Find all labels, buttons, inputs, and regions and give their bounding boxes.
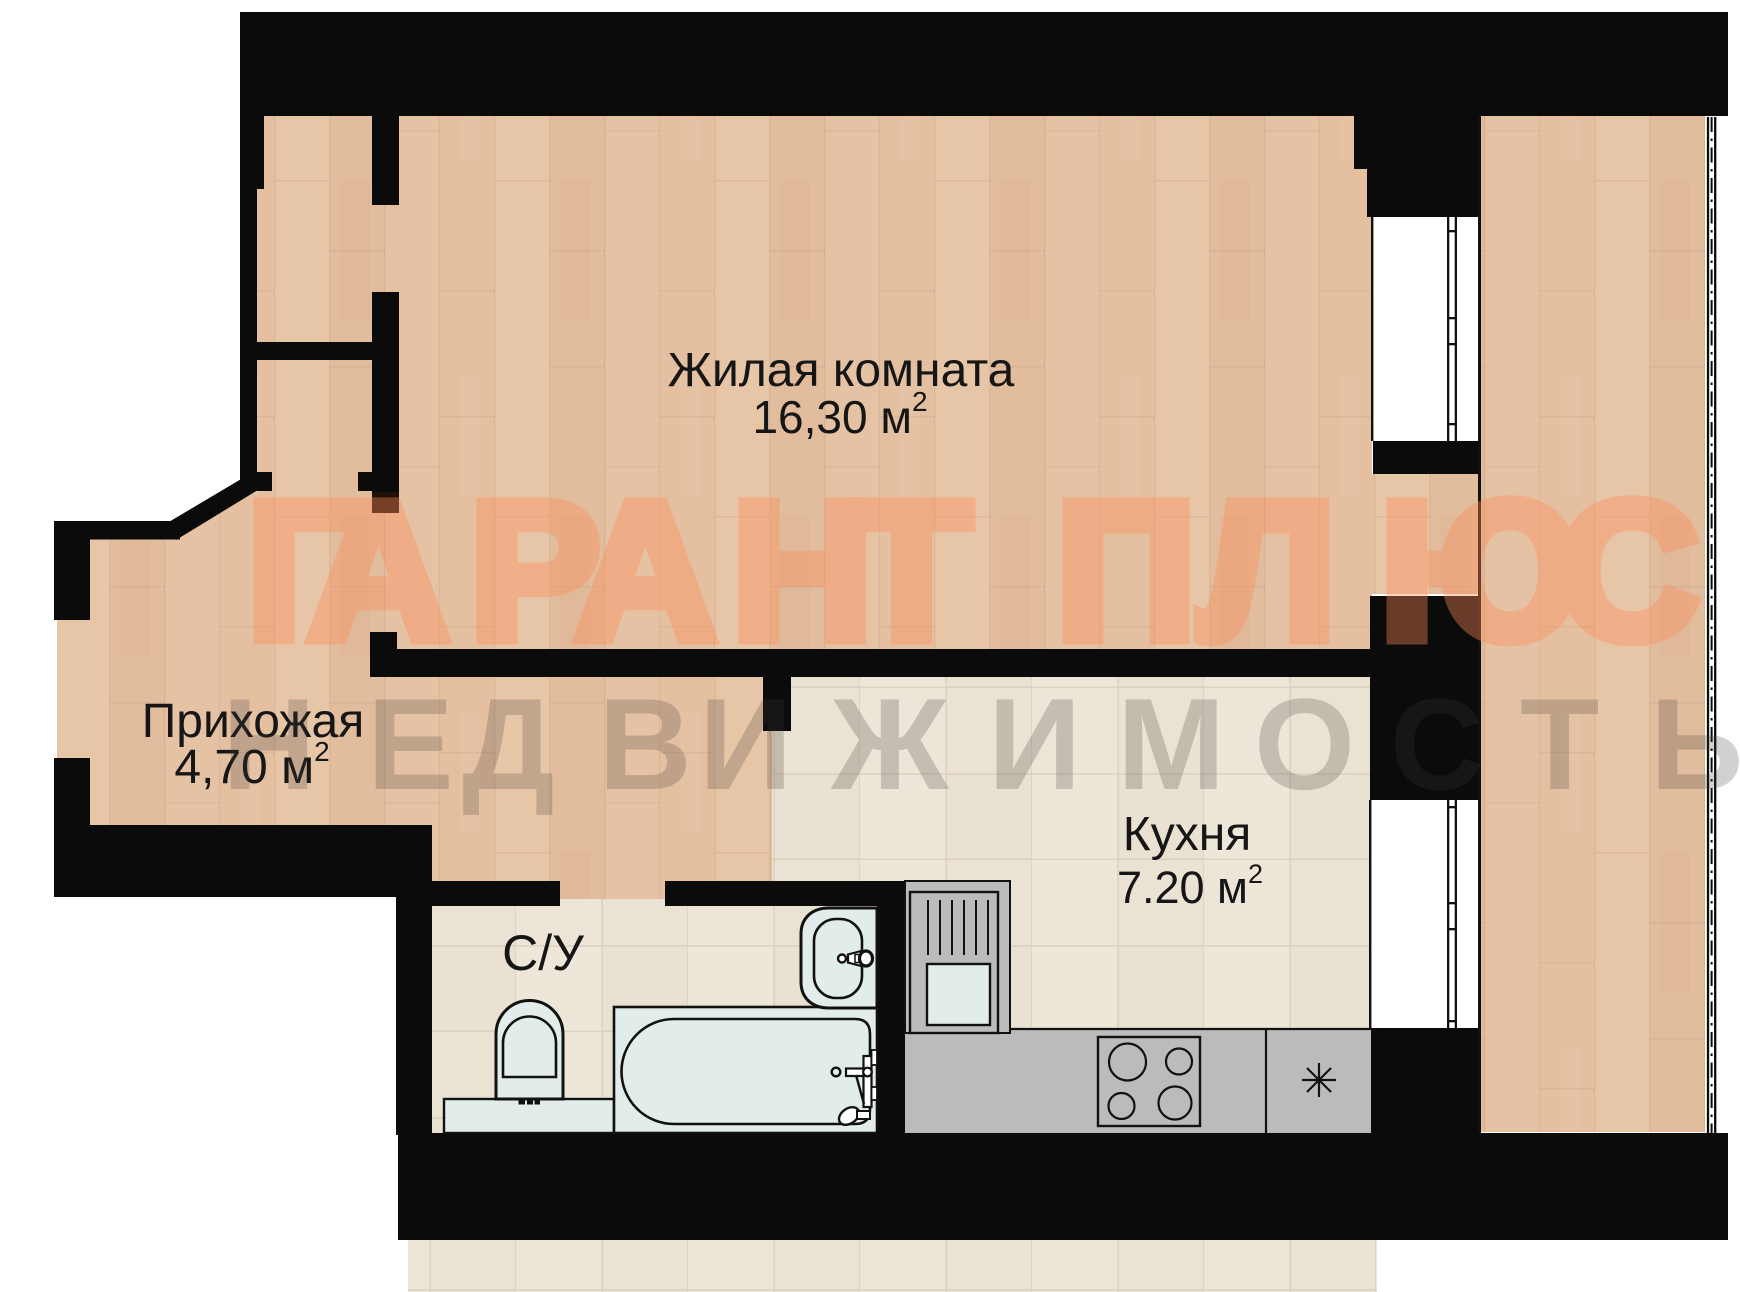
svg-text:С/У: С/У <box>502 925 584 981</box>
svg-text:7.20 м2: 7.20 м2 <box>1117 859 1263 913</box>
svg-text:Жилая комната: Жилая комната <box>668 344 1015 397</box>
svg-text:16,30 м2: 16,30 м2 <box>752 386 927 443</box>
